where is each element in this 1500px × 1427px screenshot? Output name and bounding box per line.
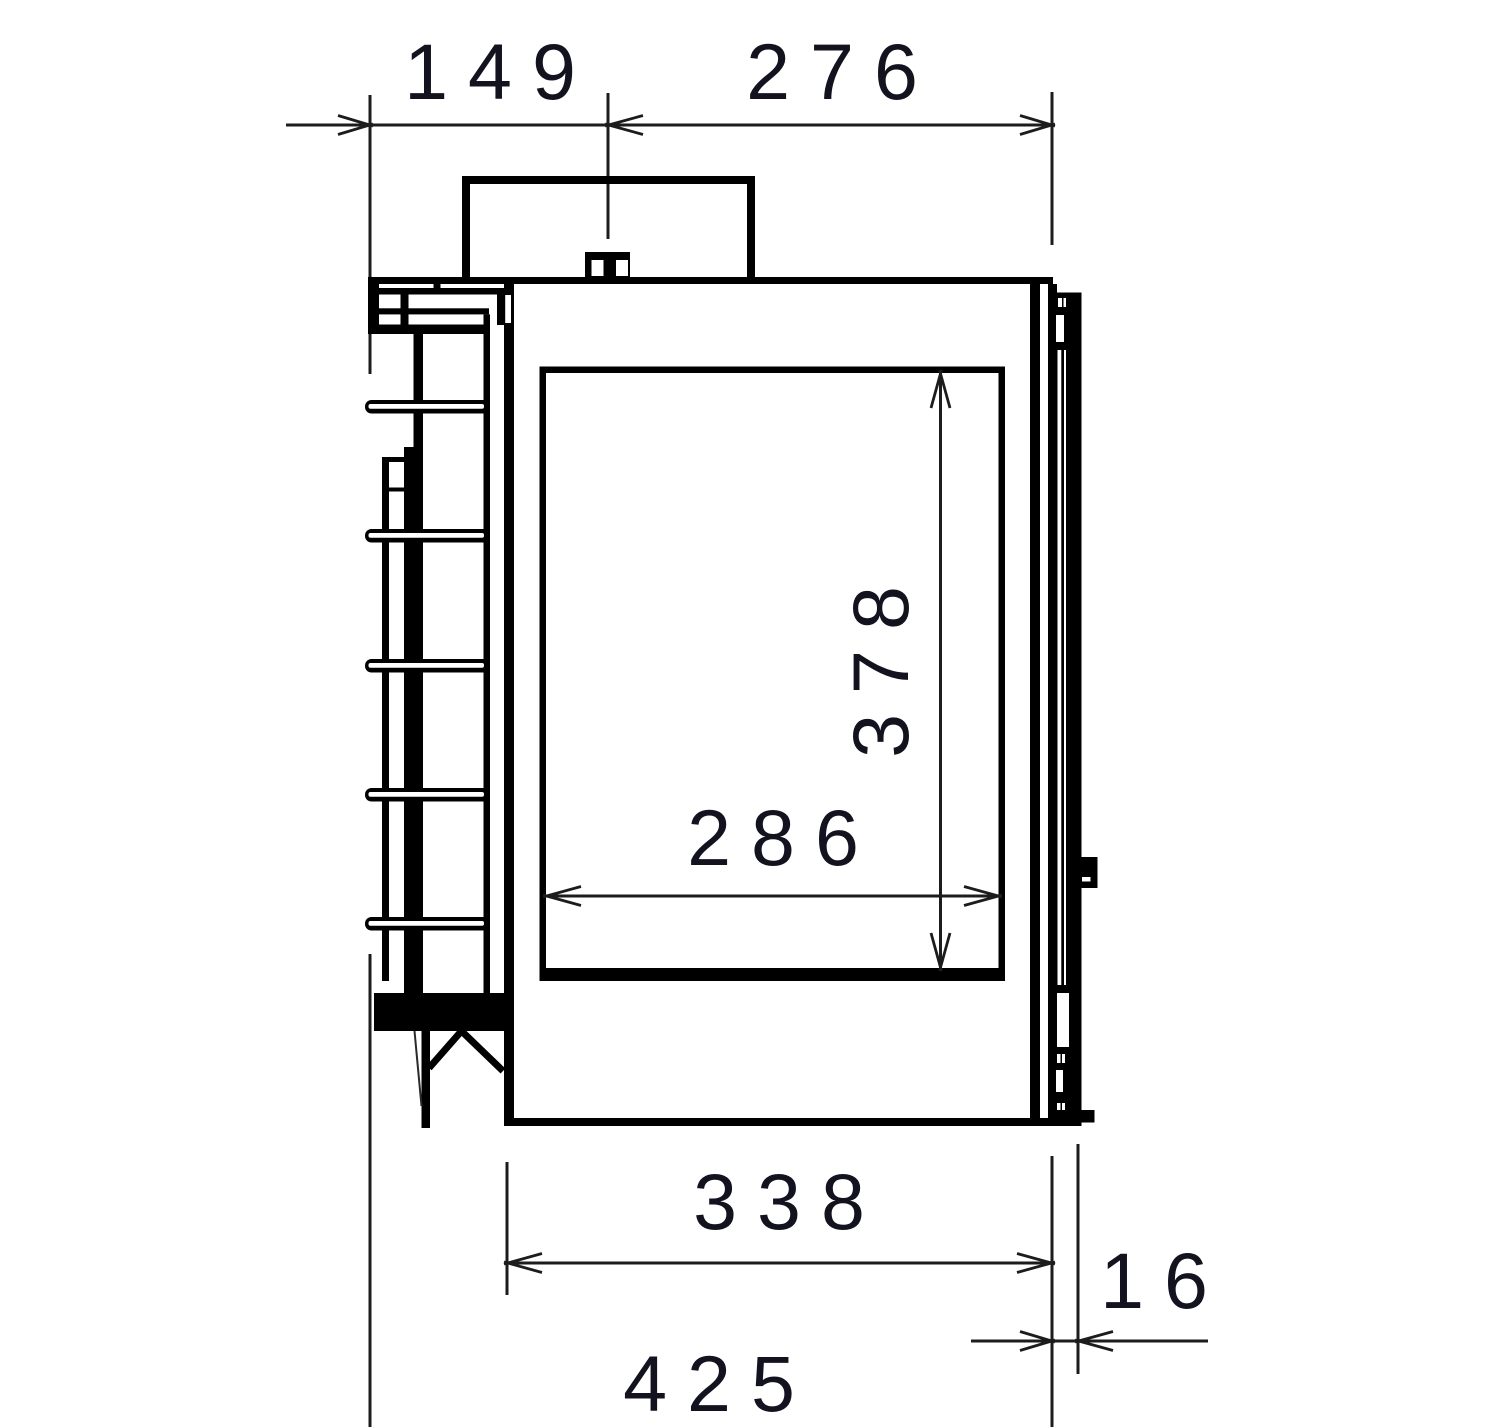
svg-text:286: 286 bbox=[687, 793, 879, 882]
svg-text:338: 338 bbox=[693, 1157, 885, 1246]
svg-text:425: 425 bbox=[623, 1339, 815, 1427]
svg-text:16: 16 bbox=[1100, 1236, 1228, 1325]
svg-text:378: 378 bbox=[836, 566, 925, 758]
svg-text:276: 276 bbox=[746, 27, 938, 116]
svg-text:149: 149 bbox=[404, 27, 596, 116]
